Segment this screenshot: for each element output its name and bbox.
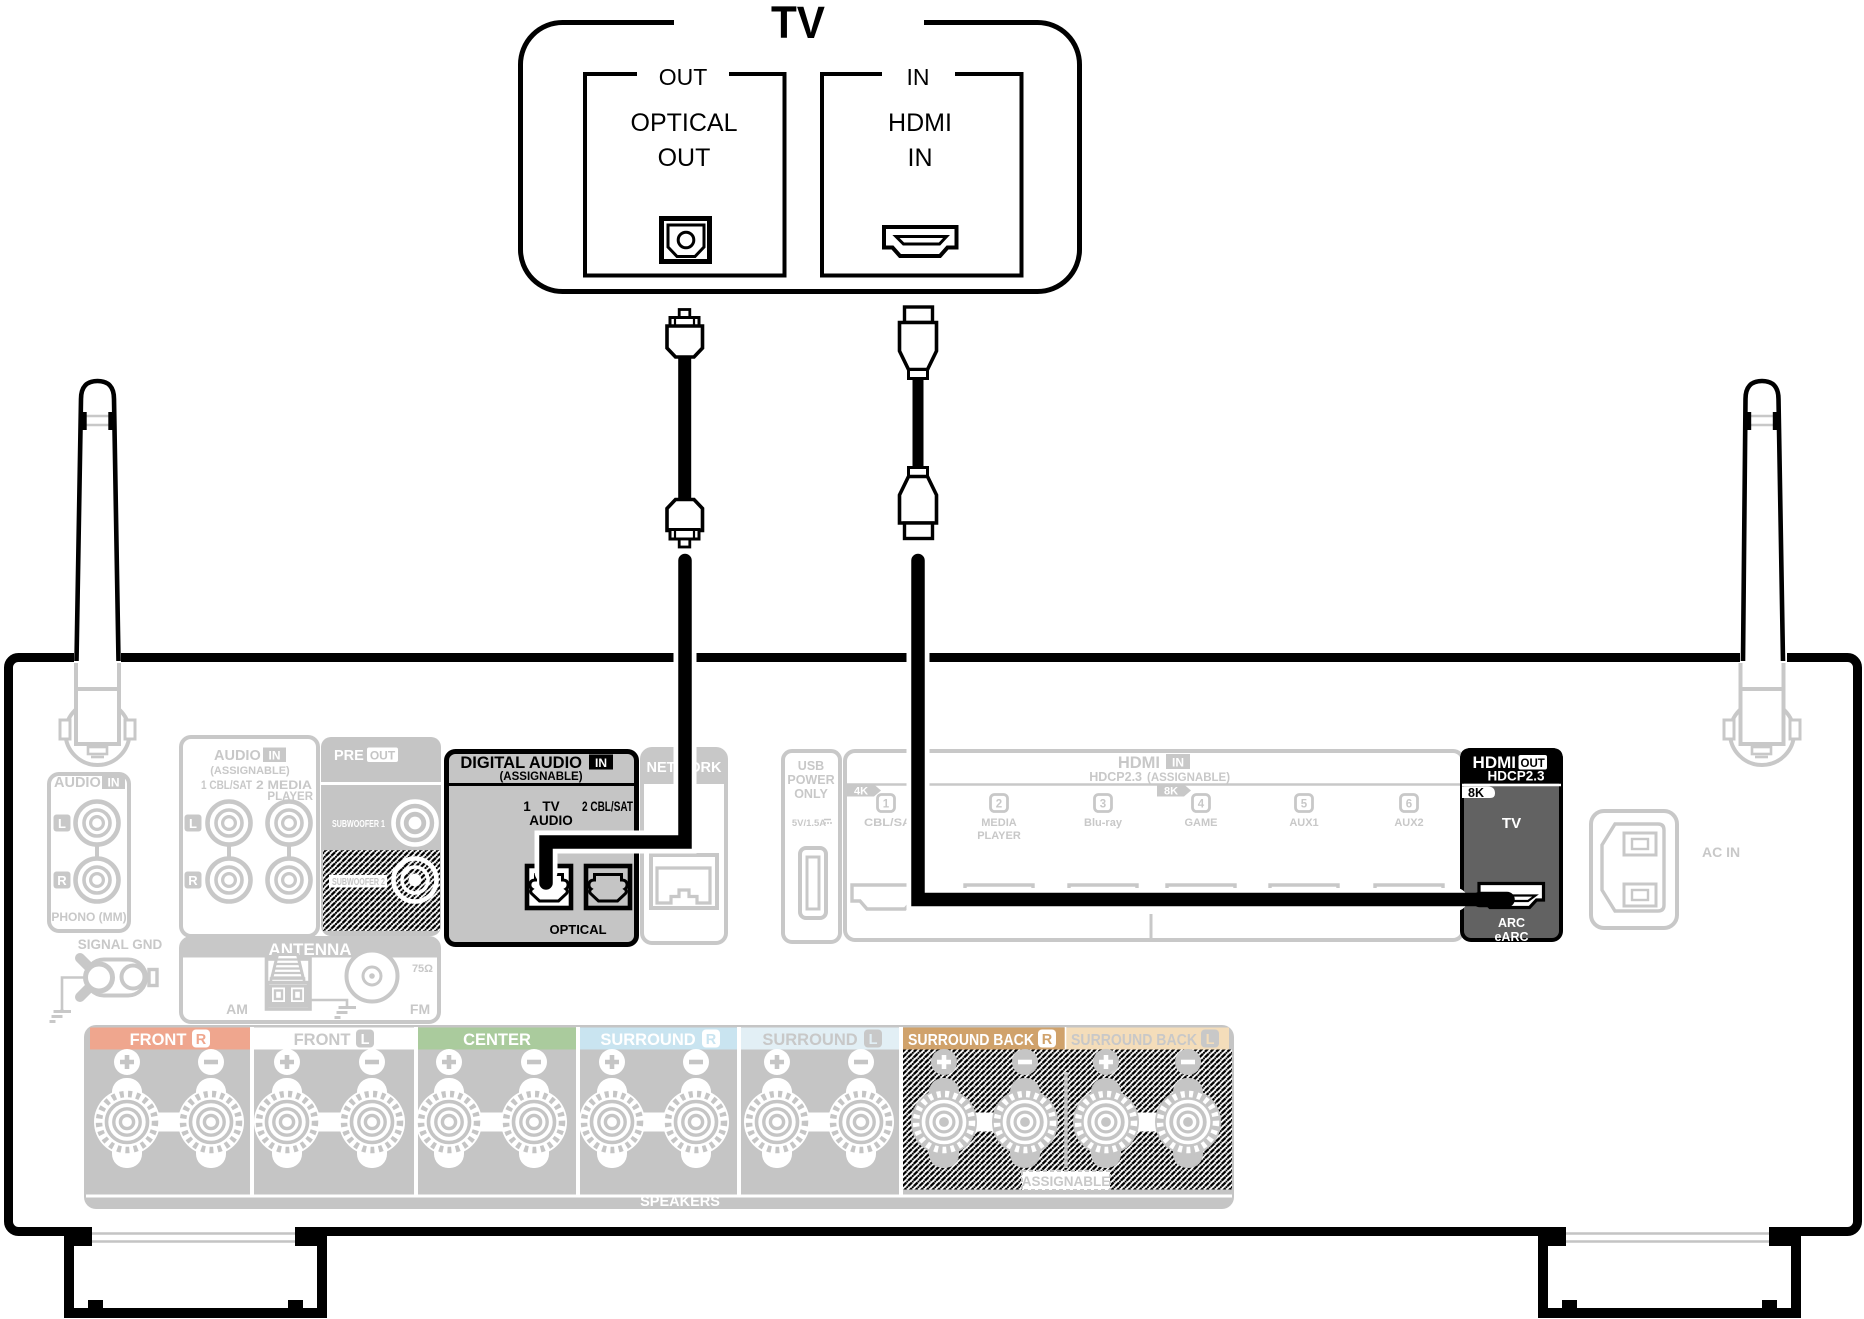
svg-text:IN: IN	[907, 64, 930, 90]
svg-text:L: L	[58, 816, 66, 831]
svg-text:R: R	[196, 1032, 207, 1048]
svg-text:L: L	[1206, 1032, 1215, 1048]
svg-text:R: R	[1042, 1032, 1053, 1048]
svg-text:L: L	[361, 1032, 370, 1048]
svg-text:PLAYER: PLAYER	[977, 830, 1021, 842]
svg-text:(ASSIGNABLE): (ASSIGNABLE)	[499, 771, 582, 783]
svg-text:FRONT: FRONT	[130, 1031, 187, 1049]
svg-text:SURROUND: SURROUND	[762, 1031, 857, 1049]
svg-text:2 CBL/SAT: 2 CBL/SAT	[582, 799, 634, 814]
svg-text:4: 4	[1198, 799, 1205, 811]
svg-text:HDCP2.3: HDCP2.3	[1487, 769, 1545, 784]
svg-text:ASSIGNABLE: ASSIGNABLE	[1022, 1174, 1111, 1189]
svg-text:AUDIO: AUDIO	[54, 775, 101, 791]
svg-text:ONLY: ONLY	[794, 787, 828, 801]
svg-text:MEDIA: MEDIA	[981, 817, 1017, 829]
svg-text:TV: TV	[771, 0, 825, 48]
svg-text:AC IN: AC IN	[1702, 844, 1740, 860]
svg-text:IN: IN	[908, 144, 933, 172]
svg-text:SPEAKERS: SPEAKERS	[640, 1194, 720, 1210]
svg-text:1: 1	[883, 799, 890, 811]
svg-text:SURROUND: SURROUND	[600, 1031, 695, 1049]
svg-text:IN: IN	[269, 749, 281, 763]
svg-text:(ASSIGNABLE): (ASSIGNABLE)	[1147, 772, 1230, 784]
svg-text:HDMI: HDMI	[888, 109, 952, 137]
svg-text:R: R	[188, 873, 198, 888]
svg-text:4K: 4K	[854, 786, 868, 798]
svg-text:8K: 8K	[1164, 786, 1178, 798]
svg-text:OPTICAL: OPTICAL	[631, 109, 738, 137]
svg-text:HDCP2.3: HDCP2.3	[1089, 770, 1142, 784]
svg-text:6: 6	[1406, 799, 1412, 811]
svg-text:AUX2: AUX2	[1394, 817, 1423, 829]
svg-text:GAME: GAME	[1185, 817, 1218, 829]
svg-text:PHONO (MM): PHONO (MM)	[51, 910, 126, 924]
svg-text:IN: IN	[1172, 756, 1184, 770]
svg-text:L: L	[189, 816, 197, 831]
svg-text:R: R	[706, 1032, 717, 1048]
svg-text:TV: TV	[1502, 815, 1521, 832]
svg-text:3: 3	[1100, 799, 1106, 811]
svg-text:DIGITAL AUDIO: DIGITAL AUDIO	[460, 754, 582, 772]
svg-text:POWER: POWER	[787, 773, 834, 787]
svg-text:1 CBL/SAT: 1 CBL/SAT	[201, 780, 252, 792]
svg-text:PRE: PRE	[334, 748, 364, 764]
svg-text:(ASSIGNABLE): (ASSIGNABLE)	[210, 765, 290, 777]
svg-text:75Ω: 75Ω	[412, 963, 433, 975]
svg-text:SURROUND BACK: SURROUND BACK	[1071, 1032, 1197, 1049]
svg-text:2: 2	[996, 799, 1002, 811]
svg-text:USB: USB	[798, 759, 824, 773]
svg-text:5: 5	[1301, 799, 1308, 811]
svg-text:TV: TV	[542, 799, 559, 814]
svg-text:OUT: OUT	[659, 64, 708, 90]
svg-text:FRONT: FRONT	[294, 1031, 351, 1049]
svg-text:SUBWOOFER 1: SUBWOOFER 1	[332, 819, 385, 830]
svg-text:L: L	[869, 1032, 878, 1048]
svg-text:AUDIO: AUDIO	[214, 748, 261, 764]
svg-text:AUDIO: AUDIO	[529, 813, 573, 828]
svg-text:SUBWOOFER 2: SUBWOOFER 2	[332, 877, 385, 888]
svg-text:Blu-ray: Blu-ray	[1084, 817, 1123, 829]
svg-text:5V/1.5A: 5V/1.5A	[792, 818, 826, 829]
svg-text:CENTER: CENTER	[463, 1031, 531, 1049]
svg-text:SIGNAL GND: SIGNAL GND	[78, 937, 163, 952]
svg-text:8K: 8K	[1468, 786, 1484, 800]
svg-text:IN: IN	[108, 776, 120, 790]
svg-text:FM: FM	[410, 1001, 430, 1017]
svg-text:1: 1	[523, 799, 531, 814]
svg-text:AM: AM	[226, 1001, 248, 1017]
svg-text:IN: IN	[595, 756, 607, 770]
svg-text:ARC: ARC	[1498, 916, 1525, 930]
svg-text:R: R	[57, 873, 67, 888]
svg-text:OPTICAL: OPTICAL	[549, 922, 606, 937]
svg-text:OUT: OUT	[658, 144, 711, 172]
svg-text:SURROUND BACK: SURROUND BACK	[908, 1032, 1034, 1049]
svg-text:eARC: eARC	[1494, 930, 1528, 944]
svg-text:OUT: OUT	[370, 749, 396, 763]
svg-text:AUX1: AUX1	[1289, 817, 1318, 829]
